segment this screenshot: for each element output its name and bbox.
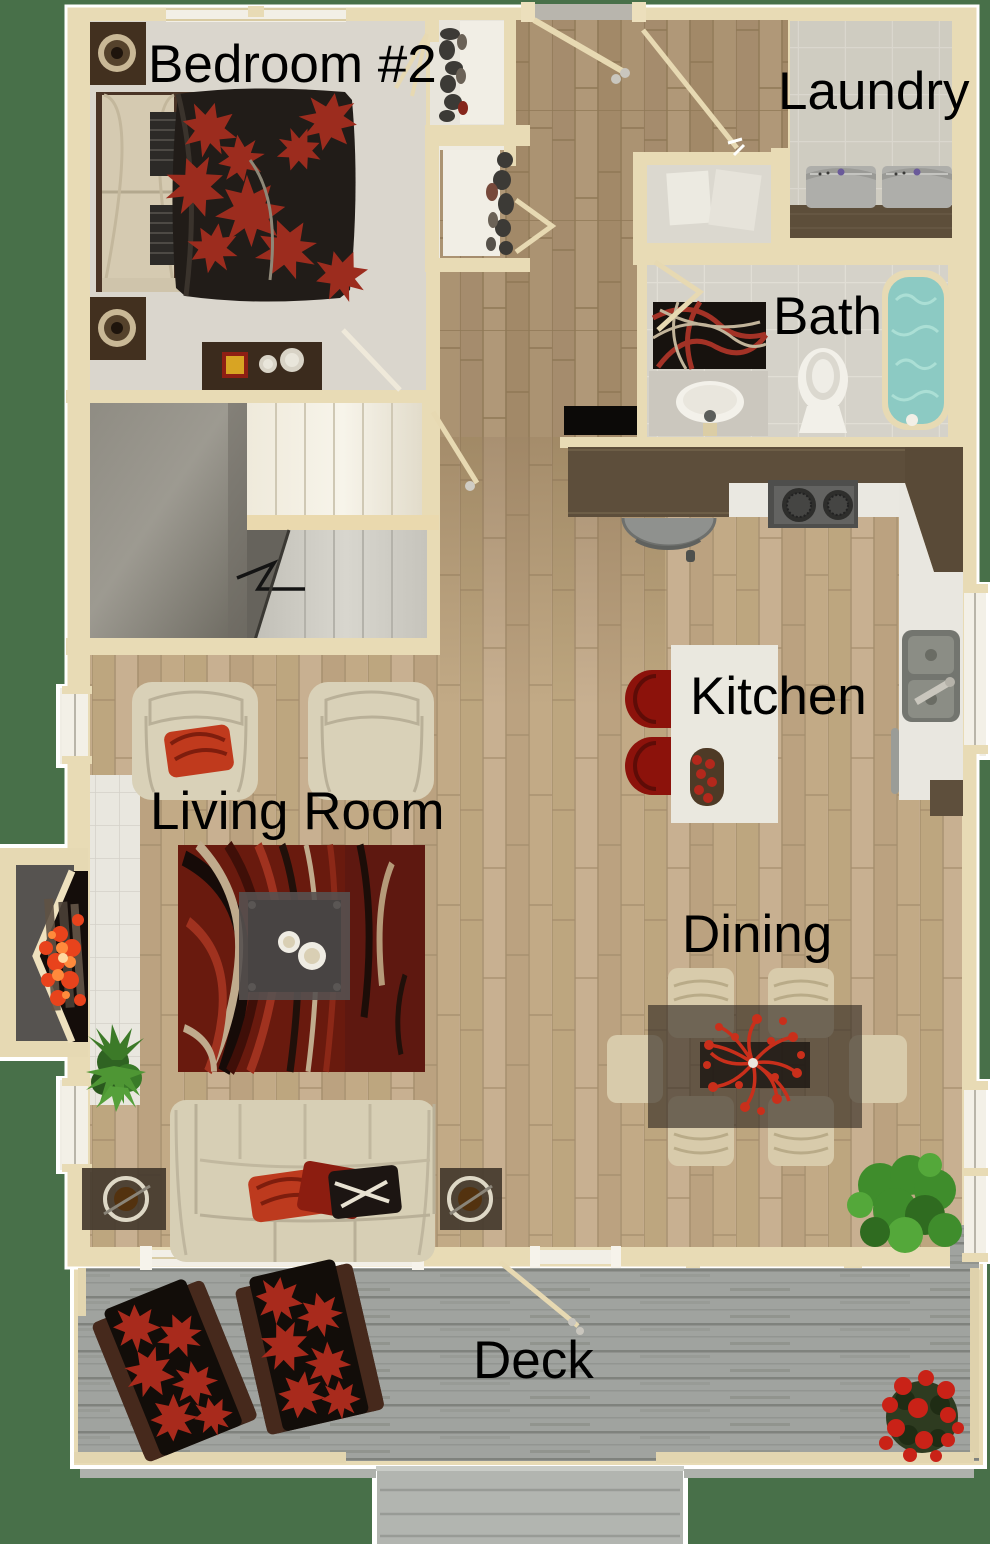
- svg-text:Bath: Bath: [773, 287, 882, 346]
- svg-text:Laundry: Laundry: [778, 62, 970, 121]
- svg-text:Dining: Dining: [682, 905, 832, 964]
- svg-text:Deck: Deck: [473, 1331, 594, 1390]
- svg-text:Bedroom #2: Bedroom #2: [148, 35, 437, 94]
- svg-text:Kitchen: Kitchen: [690, 667, 867, 726]
- svg-text:Living Room: Living Room: [150, 782, 445, 841]
